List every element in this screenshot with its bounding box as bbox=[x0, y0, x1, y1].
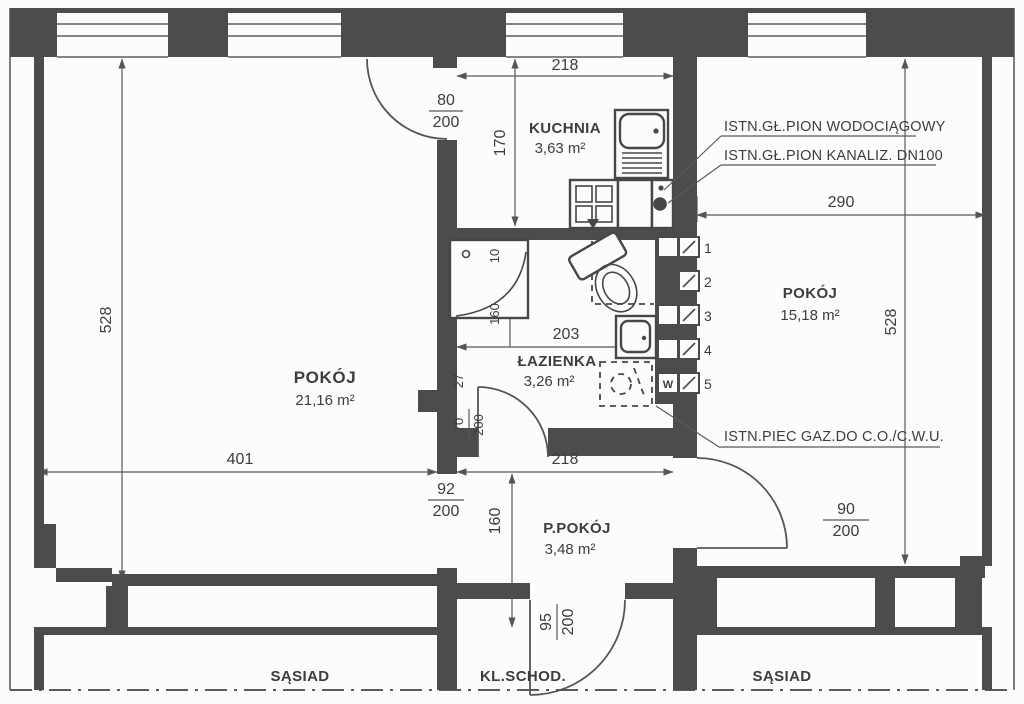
dim-right-room-width: 290 bbox=[828, 194, 855, 211]
pipe-riser-unit bbox=[618, 180, 673, 228]
svg-text:200: 200 bbox=[433, 503, 460, 520]
svg-text:200: 200 bbox=[833, 523, 860, 540]
window-right-room bbox=[748, 24, 866, 57]
dim-hall-width: 218 bbox=[552, 451, 579, 468]
svg-text:70: 70 bbox=[451, 418, 466, 432]
bath-door-arc bbox=[478, 387, 548, 457]
door-label-room-right: 90 200 bbox=[823, 501, 869, 540]
room-right-name: POKÓJ bbox=[783, 284, 838, 302]
hall-area: 3,48 m² bbox=[545, 541, 596, 558]
svg-text:80: 80 bbox=[437, 92, 455, 109]
window-kitchen bbox=[506, 24, 623, 57]
annotation-water-riser: ISTN.GŁ.PION WODOCIĄGOWY bbox=[724, 119, 946, 135]
dim-left-room-width: 401 bbox=[227, 451, 254, 468]
dimension-lines bbox=[38, 59, 985, 627]
marker-number: 1 bbox=[704, 240, 712, 256]
top-outer-wall bbox=[10, 8, 1014, 13]
room-right-area: 15,18 m² bbox=[780, 307, 839, 324]
marker-number: 3 bbox=[704, 308, 712, 324]
door-label-kitchen: 80 200 bbox=[429, 92, 463, 131]
kitchen-door-stop bbox=[433, 57, 457, 68]
sewage-riser-point bbox=[653, 197, 667, 211]
floor-plan-page: 1 2 3 4 W 5 bbox=[0, 0, 1024, 704]
marker-number: 5 bbox=[704, 376, 712, 392]
floor-plan-drawing: 1 2 3 4 W 5 bbox=[0, 0, 1024, 704]
marker-row-4: 4 bbox=[658, 339, 712, 359]
staircase-label: KL.SCHOD. bbox=[480, 668, 566, 685]
svg-text:200: 200 bbox=[471, 414, 486, 436]
dim-kitchen-depth: 170 bbox=[492, 130, 509, 157]
stove bbox=[570, 180, 618, 229]
annotation-sewage-riser: ISTN.GŁ.PION KANALIZ. DN100 bbox=[724, 148, 943, 164]
dim-shower-side: 160 bbox=[487, 303, 502, 325]
right-room-door-arc bbox=[697, 458, 787, 548]
dim-kitchen-width: 218 bbox=[552, 57, 579, 74]
window-left-1 bbox=[57, 24, 168, 57]
water-riser-point bbox=[658, 185, 663, 190]
svg-text:90: 90 bbox=[837, 501, 855, 518]
marker-row-3: 3 bbox=[658, 305, 712, 325]
bathroom-name: ŁAZIENKA bbox=[517, 353, 596, 370]
door-label-entrance: 95 200 bbox=[538, 604, 577, 640]
gas-furnace bbox=[600, 362, 652, 406]
bathroom-area: 3,26 m² bbox=[524, 373, 575, 390]
svg-text:200: 200 bbox=[433, 114, 460, 131]
hall-name: P.POKÓJ bbox=[543, 519, 611, 537]
kitchen-name: KUCHNIA bbox=[529, 120, 601, 137]
dim-duct: 27 bbox=[451, 374, 466, 388]
svg-text:95: 95 bbox=[538, 613, 555, 631]
marker-number: 4 bbox=[704, 342, 712, 358]
marker-row-5: W 5 bbox=[658, 373, 712, 393]
marker-w-label: W bbox=[663, 379, 674, 391]
dim-bath-width: 203 bbox=[553, 326, 580, 343]
bathroom-sink bbox=[616, 316, 656, 358]
marker-row-1: 1 bbox=[658, 237, 712, 257]
marker-row-2: 2 bbox=[679, 271, 712, 291]
door-label-room-left: 92 200 bbox=[428, 481, 464, 520]
kitchen-sink bbox=[615, 110, 668, 178]
annotation-gas-furnace: ISTN.PIEC GAZ.DO C.O./C.W.U. bbox=[724, 429, 944, 445]
walls bbox=[10, 8, 1014, 690]
toilet bbox=[568, 231, 654, 323]
room-left-area: 21,16 m² bbox=[295, 392, 354, 409]
neighbor-right-label: SĄSIAD bbox=[752, 668, 811, 685]
dim-hall-depth: 160 bbox=[487, 508, 504, 535]
dim-right-room-height: 528 bbox=[883, 309, 900, 336]
dim-shower-gap: 10 bbox=[487, 249, 502, 263]
svg-text:92: 92 bbox=[437, 481, 455, 498]
marker-number: 2 bbox=[704, 274, 712, 290]
window-left-2 bbox=[228, 24, 341, 57]
neighbor-left-label: SĄSIAD bbox=[270, 668, 329, 685]
room-left-name: POKÓJ bbox=[294, 368, 357, 387]
svg-text:200: 200 bbox=[560, 609, 577, 636]
kitchen-area: 3,63 m² bbox=[535, 140, 586, 157]
dim-left-room-height: 528 bbox=[98, 307, 115, 334]
